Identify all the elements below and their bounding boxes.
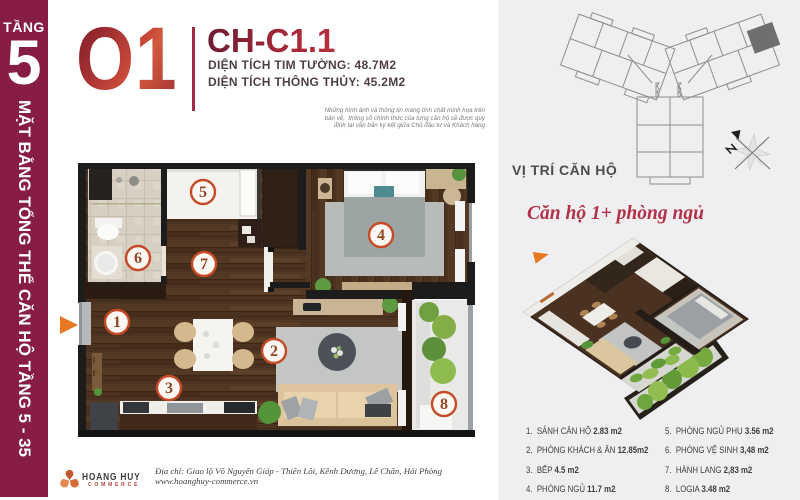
svg-text:6: 6 — [134, 250, 142, 267]
svg-text:3: 3 — [165, 380, 173, 397]
svg-text:4: 4 — [377, 227, 385, 244]
svg-text:7: 7 — [200, 256, 208, 273]
svg-text:8: 8 — [440, 396, 448, 413]
svg-text:2: 2 — [270, 343, 278, 360]
svg-text:1: 1 — [113, 314, 121, 331]
svg-text:5: 5 — [199, 184, 207, 201]
